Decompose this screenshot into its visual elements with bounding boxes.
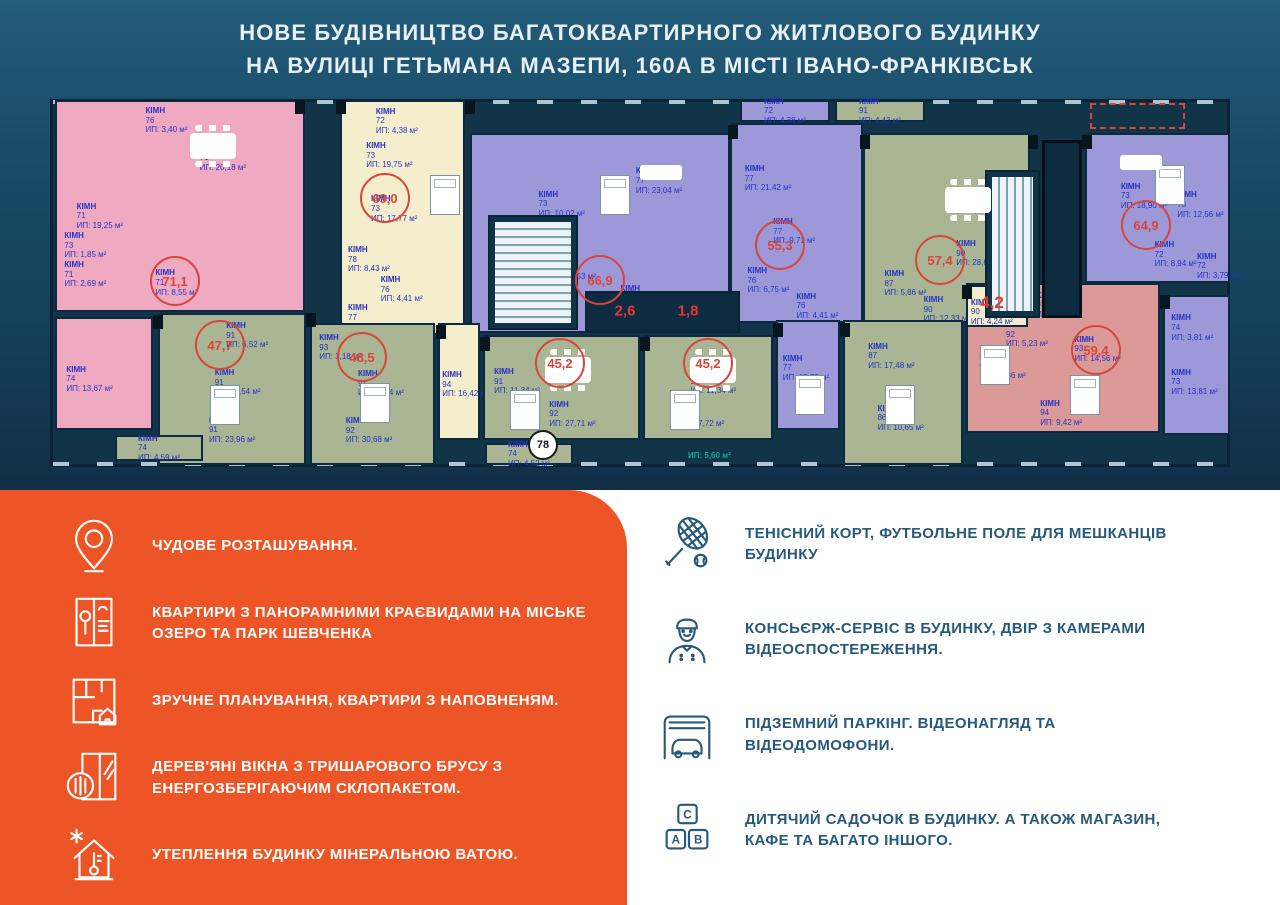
room-label: КІМН74ИП: 13,67 м² (66, 365, 112, 394)
room-label: КІМН72ИП: 4,38 м² (376, 107, 418, 136)
apartment-unit-cream-690: КІМН72ИП: 4,38 м²КІМН73ИП: 19,75 м²КІМН7… (340, 100, 465, 335)
room-label: КІМН87ИП: 17,48 м² (868, 342, 914, 371)
floor-plan-icon (62, 669, 126, 733)
location-pin-icon (62, 514, 126, 578)
furniture-bed (360, 383, 390, 423)
room-label: КІМН71ИП: 19,25 м² (77, 202, 123, 231)
furniture-bed (600, 175, 630, 215)
wall-pier (153, 315, 163, 329)
floor-plan: КІМН76ИП: 3,40 м²КІМН71ИП: 20,18 м²КІМН7… (40, 95, 1240, 487)
feature-location: ЧУДОВЕ РОЗТАШУВАННЯ. (62, 514, 591, 578)
apartment-unit-cream-94: КІМН94ИП: 16,42 м² (438, 323, 480, 440)
area-badge: 57,4 (915, 235, 965, 285)
area-badge: 66,9 (575, 255, 625, 305)
svg-text:А: А (672, 834, 681, 847)
room-label: КІМН74ИП: 3,81 м² (1171, 313, 1213, 342)
feature-text: ДИТЯЧИЙ САДОЧОК В БУДИНКУ. А ТАКОЖ МАГАЗ… (745, 809, 1205, 852)
feature-parking: ПІДЗЕМНИЙ ПАРКІНГ. ВІДЕОНАГЛЯД ТА ВІДЕОД… (655, 703, 1260, 767)
features-panel-white: ТЕНІСНИЙ КОРТ, ФУТБОЛЬНЕ ПОЛЕ ДЛЯ МЕШКАН… (655, 512, 1280, 862)
furniture-bed (1155, 165, 1185, 205)
wooden-window-icon (62, 746, 126, 810)
wall-pier (860, 135, 870, 149)
apartment-unit-purple-553: КІМН77ИП: 21,42 м²КІМН77ИП: 9,71 м²КІМН7… (730, 123, 863, 323)
svg-text:С: С (683, 808, 692, 821)
furniture-table (190, 133, 236, 159)
wall-pier (1082, 135, 1092, 149)
svg-text:В: В (694, 834, 702, 847)
feature-windows: ДЕРЕВ'ЯНІ ВІКНА З ТРИШАРОВОГО БРУСУ З ЕН… (62, 746, 591, 810)
area-badge: 64,9 (1121, 200, 1171, 250)
area-badge: 45,2 (683, 338, 733, 388)
room-label: КІМН76ИП: 4,41 м² (797, 292, 839, 321)
furniture-sofa (640, 165, 682, 180)
concierge-icon (655, 607, 719, 671)
wall-pier (962, 285, 972, 299)
room-label: КІМН76ИП: 6,75 м² (747, 266, 789, 295)
wall-pier (640, 337, 650, 351)
room-label: КІМН71ИП: 2,69 м² (64, 260, 106, 289)
wall-pier (1028, 135, 1038, 149)
wall-pier (436, 325, 446, 339)
room-label: КІМН78ИП: 8,43 м² (348, 245, 390, 274)
area-badge: 2,6 (615, 303, 636, 320)
room-label: КІМН92ИП: 27,71 м² (549, 400, 595, 429)
feature-text: ТЕНІСНИЙ КОРТ, ФУТБОЛЬНЕ ПОЛЕ ДЛЯ МЕШКАН… (745, 523, 1205, 566)
wall-pier (306, 313, 316, 327)
stairs (992, 177, 1033, 311)
wall-pier (1160, 295, 1170, 309)
furniture-bed (885, 385, 915, 425)
title-line-2: НА ВУЛИЦІ ГЕТЬМАНА МАЗЕПИ, 160А В МІСТІ … (0, 49, 1280, 82)
features-panel-orange: ЧУДОВЕ РОЗТАШУВАННЯ. КВАРТИРИ З ПАНОРАМН… (0, 490, 627, 905)
room-label: КІМН91ИП: 4,43 м² (859, 97, 901, 126)
wall-pier (840, 323, 850, 337)
feature-panoramic-view: КВАРТИРИ З ПАНОРАМНИМИ КРАЄВИДАМИ НА МІС… (62, 591, 591, 655)
room-label: КІМН94ИП: 16,42 м² (442, 370, 488, 399)
furniture-bed (795, 375, 825, 415)
feature-text: КОНСЬЄРЖ-СЕРВІС В БУДИНКУ, ДВІР З КАМЕРА… (745, 618, 1205, 661)
feature-insulation: УТЕПЛЕННЯ БУДИНКУ МІНЕРАЛЬНОЮ ВАТОЮ. (62, 823, 591, 887)
furniture-bed (670, 390, 700, 430)
furniture-bed (510, 390, 540, 430)
room-label: КІМН74ИП: 4,59 м² (138, 434, 180, 463)
furniture-bed (1070, 375, 1100, 415)
area-badge: 4,2 (980, 293, 1004, 313)
area-badge: 1,8 (678, 303, 699, 320)
furniture-bed (430, 175, 460, 215)
stair-core (488, 215, 578, 330)
area-badge: 47,7 (195, 320, 245, 370)
wall-pier (728, 125, 738, 139)
furniture-table (945, 187, 991, 213)
balcony-tab: КІМН74ИП: 4,59 м² (115, 435, 203, 461)
area-badge: 69,0 (360, 173, 410, 223)
room-label: КІМН77ИП: 21,42 м² (745, 164, 791, 193)
abc-blocks-icon: САВ (655, 798, 719, 862)
room-label: КІМН72ИП: 3,79 м² (1197, 252, 1239, 281)
balcony-tab: КІМН72ИП: 4,38 м² (740, 100, 830, 122)
feature-text: КВАРТИРИ З ПАНОРАМНИМИ КРАЄВИДАМИ НА МІС… (152, 602, 591, 645)
wall-pier (773, 323, 783, 337)
wall-pier (480, 337, 490, 351)
feature-text: ДЕРЕВ'ЯНІ ВІКНА З ТРИШАРОВОГО БРУСУ З ЕН… (152, 756, 591, 799)
room-label: КІМН72ИП: 4,38 м² (764, 97, 806, 126)
elevator-shaft (1042, 140, 1082, 318)
insulated-house-icon (62, 823, 126, 887)
area-note: ИП: 5,60 м² (688, 451, 731, 460)
furniture-sofa (1120, 155, 1162, 170)
unit-number-badge: 78 (528, 430, 558, 460)
wall-pier (336, 100, 346, 114)
furniture-bed (210, 385, 240, 425)
garage-icon (655, 703, 719, 767)
feature-tennis: ТЕНІСНИЙ КОРТ, ФУТБОЛЬНЕ ПОЛЕ ДЛЯ МЕШКАН… (655, 512, 1260, 576)
room-label: КІМН73ИП: 13,81 м² (1171, 368, 1217, 397)
feature-text: ЗРУЧНЕ ПЛАНУВАННЯ, КВАРТИРИ З НАПОВНЕНЯМ… (152, 690, 559, 711)
area-badge: 55,3 (755, 220, 805, 270)
room-label: КІМН76ИП: 4,41 м² (381, 275, 423, 304)
features-list-right: ТЕНІСНИЙ КОРТ, ФУТБОЛЬНЕ ПОЛЕ ДЛЯ МЕШКАН… (655, 512, 1260, 862)
features-list-left: ЧУДОВЕ РОЗТАШУВАННЯ. КВАРТИРИ З ПАНОРАМН… (62, 514, 591, 887)
furniture-bed (980, 345, 1010, 385)
apartment-unit-pink-74: КІМН74ИП: 13,67 м² (55, 317, 153, 430)
terrace-outline (1090, 103, 1185, 129)
feature-layout: ЗРУЧНЕ ПЛАНУВАННЯ, КВАРТИРИ З НАПОВНЕНЯМ… (62, 669, 591, 733)
feature-text: ЧУДОВЕ РОЗТАШУВАННЯ. (152, 535, 358, 556)
room-label: КІМН73ИП: 19,75 м² (366, 141, 412, 170)
area-badge: 48,5 (337, 332, 387, 382)
tennis-racket-icon (655, 512, 719, 576)
room-label: КІМН73ИП: 1,85 м² (64, 231, 106, 260)
feature-text: УТЕПЛЕННЯ БУДИНКУ МІНЕРАЛЬНОЮ ВАТОЮ. (152, 844, 518, 865)
area-badge: 59,4 (1071, 325, 1121, 375)
feature-text: ПІДЗЕМНИЙ ПАРКІНГ. ВІДЕОНАГЛЯД ТА ВІДЕОД… (745, 713, 1205, 756)
area-badge: 45,2 (535, 338, 585, 388)
room-label: КІМН76ИП: 3,40 м² (146, 106, 188, 135)
apartment-unit-purple-right-lower: КІМН74ИП: 3,81 м²КІМН73ИП: 13,81 м² (1163, 295, 1230, 435)
stairs (495, 222, 571, 323)
feature-concierge: КОНСЬЄРЖ-СЕРВІС В БУДИНКУ, ДВІР З КАМЕРА… (655, 607, 1260, 671)
wall-pier (295, 100, 305, 114)
panoramic-window-icon (62, 591, 126, 655)
feature-kindergarten: САВ ДИТЯЧИЙ САДОЧОК В БУДИНКУ. А ТАКОЖ М… (655, 798, 1260, 862)
balcony-tab: КІМН91ИП: 4,43 м² (835, 100, 925, 122)
title-line-1: НОВЕ БУДІВНИЦТВО БАГАТОКВАРТИРНОГО ЖИТЛО… (0, 16, 1280, 49)
area-badge: 71,1 (150, 256, 200, 306)
page-title: НОВЕ БУДІВНИЦТВО БАГАТОКВАРТИРНОГО ЖИТЛО… (0, 16, 1280, 82)
hero-section: НОВЕ БУДІВНИЦТВО БАГАТОКВАРТИРНОГО ЖИТЛО… (0, 0, 1280, 490)
wall-pier (465, 100, 475, 114)
